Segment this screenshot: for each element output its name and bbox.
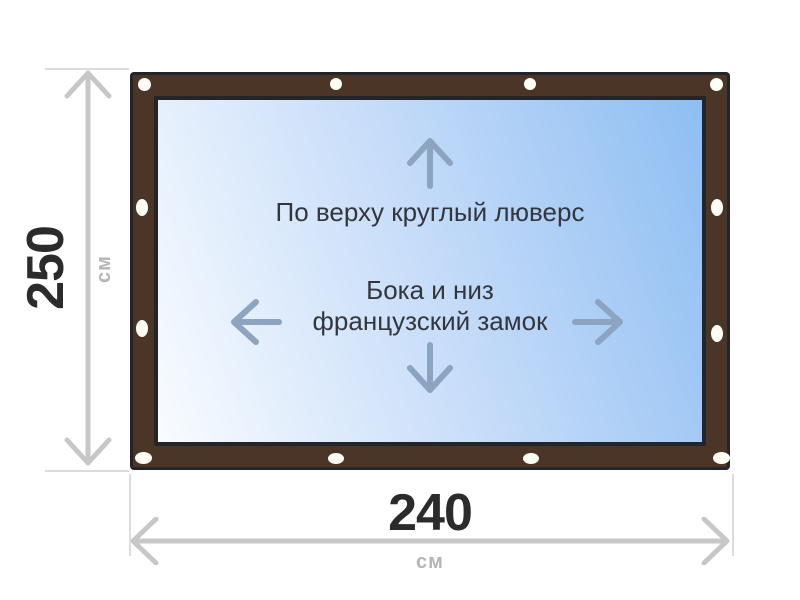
annotation-middle-line-1: Бока и низ bbox=[130, 275, 730, 306]
tarp-frame bbox=[130, 72, 730, 470]
height-value: 250 bbox=[21, 198, 71, 338]
arrow-down-icon bbox=[407, 342, 453, 394]
grommet-top-mid-2 bbox=[524, 78, 536, 90]
curtain-size-diagram: 250 см bbox=[0, 0, 800, 600]
width-value: 240 bbox=[130, 486, 730, 540]
annotation-middle: Бока и низ французский замок bbox=[130, 275, 730, 337]
grommet-top-left bbox=[138, 78, 151, 91]
grommet-bottom-mid-1 bbox=[328, 453, 344, 464]
arrow-up-icon bbox=[407, 137, 453, 189]
annotation-top: По верху круглый люверс bbox=[130, 197, 730, 227]
extension-line-bottom bbox=[45, 470, 129, 472]
grommet-bottom-mid-2 bbox=[523, 453, 539, 464]
grommet-top-right bbox=[710, 78, 723, 91]
grommet-bottom-left bbox=[135, 452, 152, 464]
grommet-top-mid-1 bbox=[330, 78, 342, 90]
annotation-middle-line-2: французский замок bbox=[130, 306, 730, 337]
width-unit: см bbox=[130, 550, 730, 574]
grommet-bottom-right bbox=[713, 452, 730, 464]
extension-line-bottom-right bbox=[732, 474, 734, 556]
height-unit: см bbox=[93, 239, 115, 299]
